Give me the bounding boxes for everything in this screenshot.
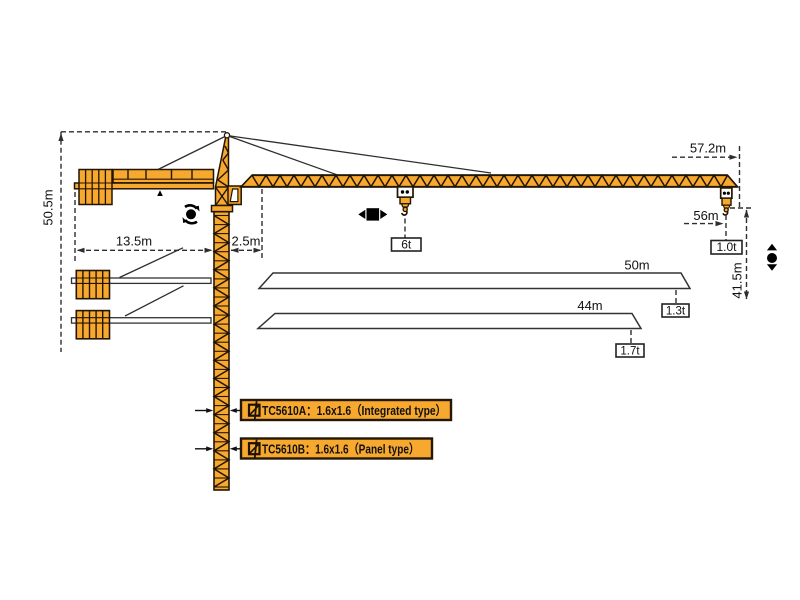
svg-text:1.7t: 1.7t <box>620 345 640 357</box>
svg-text:TC5610B：1.6x1.6（Panel type）: TC5610B：1.6x1.6（Panel type） <box>262 442 419 457</box>
svg-text:1.3t: 1.3t <box>666 305 686 317</box>
svg-text:50.5m: 50.5m <box>41 189 56 225</box>
svg-text:50m: 50m <box>624 258 649 273</box>
svg-text:13.5m: 13.5m <box>116 234 152 249</box>
svg-text:6t: 6t <box>401 237 412 251</box>
svg-text:44m: 44m <box>577 298 602 313</box>
svg-text:56m: 56m <box>693 208 718 223</box>
svg-text:TC5610A：1.6x1.6（Integrated typ: TC5610A：1.6x1.6（Integrated type） <box>262 403 446 418</box>
svg-text:1.0t: 1.0t <box>716 240 737 254</box>
svg-text:57.2m: 57.2m <box>690 141 726 156</box>
svg-text:41.5m: 41.5m <box>730 262 745 298</box>
svg-text:2.5m: 2.5m <box>232 234 261 249</box>
